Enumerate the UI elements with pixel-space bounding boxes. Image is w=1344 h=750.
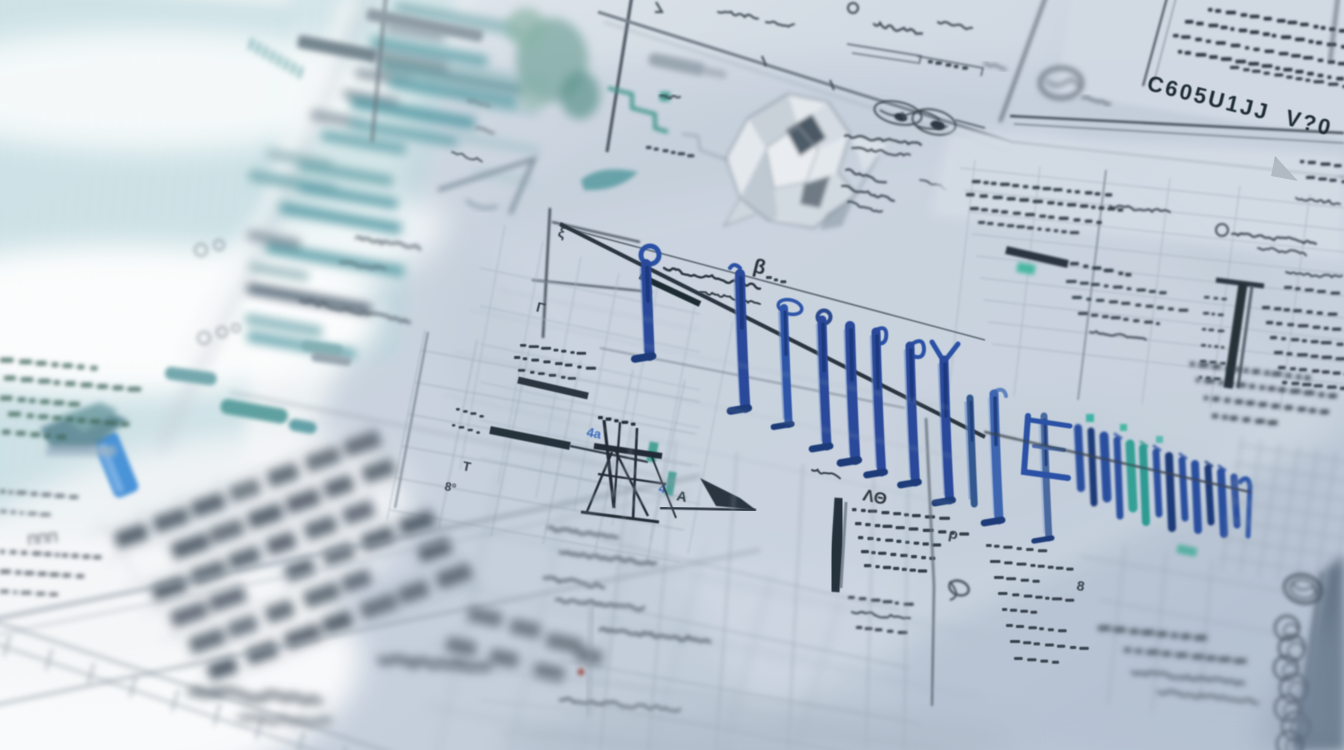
svg-text:ΠΠΠ⁢: ΠΠΠ⁢ [27,529,59,548]
